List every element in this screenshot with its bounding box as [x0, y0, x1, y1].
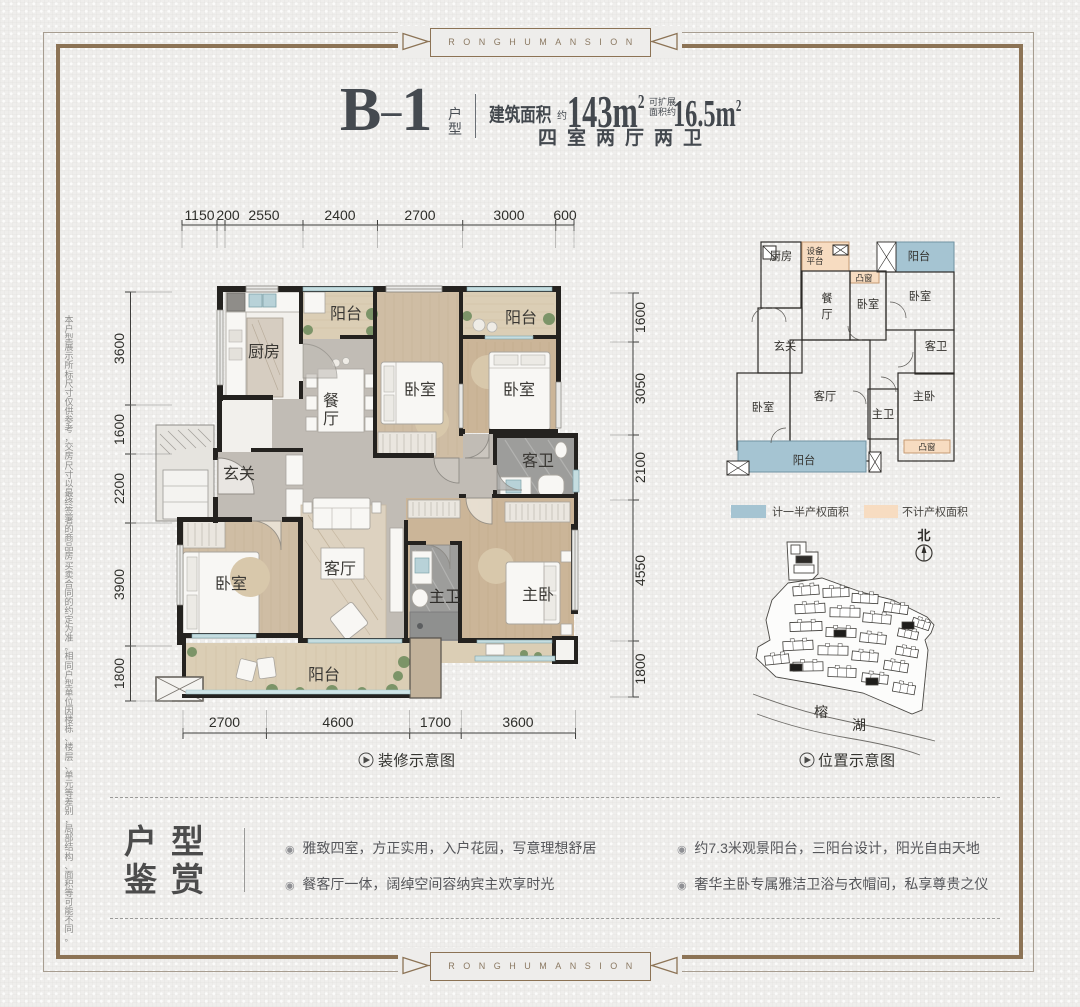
svg-text:1700: 1700: [420, 714, 451, 730]
svg-text:阳台: 阳台: [908, 249, 930, 263]
svg-text:2700: 2700: [209, 714, 240, 730]
svg-text:600: 600: [553, 207, 577, 223]
svg-text:2100: 2100: [632, 452, 648, 483]
svg-text:主卧: 主卧: [913, 390, 935, 403]
svg-text:主卧: 主卧: [522, 586, 554, 604]
svg-text:厅: 厅: [323, 411, 339, 428]
svg-text:厨房: 厨房: [770, 250, 792, 263]
svg-text:餐: 餐: [821, 291, 832, 305]
svg-text:1600: 1600: [111, 414, 127, 445]
svg-text:1800: 1800: [632, 653, 648, 684]
svg-text:玄关: 玄关: [774, 339, 796, 353]
svg-text:3600: 3600: [502, 714, 533, 730]
svg-text:客厅: 客厅: [814, 389, 836, 403]
svg-text:餐: 餐: [323, 392, 339, 410]
svg-text:榕: 榕: [814, 704, 828, 720]
svg-text:阳台: 阳台: [793, 453, 815, 467]
svg-text:3000: 3000: [493, 207, 524, 223]
svg-text:装修示意图: 装修示意图: [378, 752, 456, 770]
svg-text:凸窗: 凸窗: [918, 442, 935, 452]
svg-text:阳台: 阳台: [308, 666, 340, 684]
svg-text:计一半产权面积: 计一半产权面积: [772, 505, 849, 519]
svg-text:1800: 1800: [111, 658, 127, 689]
svg-text:客厅: 客厅: [324, 560, 356, 578]
svg-text:厅: 厅: [821, 309, 832, 321]
svg-text:3050: 3050: [632, 373, 648, 404]
svg-text:湖: 湖: [852, 717, 866, 733]
svg-text:阳台: 阳台: [330, 305, 362, 323]
svg-text:2200: 2200: [111, 473, 127, 504]
svg-text:3900: 3900: [111, 569, 127, 600]
svg-text:卧室: 卧室: [857, 297, 879, 311]
svg-text:不计产权面积: 不计产权面积: [902, 505, 968, 519]
svg-text:3600: 3600: [111, 333, 127, 364]
svg-text:主卫: 主卫: [872, 408, 894, 421]
svg-text:卧室: 卧室: [752, 400, 774, 414]
svg-text:平台: 平台: [806, 256, 823, 266]
svg-text:200: 200: [216, 207, 240, 223]
svg-text:4550: 4550: [632, 555, 648, 586]
svg-text:2400: 2400: [324, 207, 355, 223]
svg-text:卧室: 卧室: [503, 381, 535, 399]
svg-text:卧室: 卧室: [404, 381, 436, 399]
svg-text:设备: 设备: [806, 246, 824, 256]
svg-text:主卫: 主卫: [429, 588, 461, 606]
svg-text:位置示意图: 位置示意图: [818, 752, 896, 770]
svg-text:2550: 2550: [248, 207, 279, 223]
svg-text:2700: 2700: [404, 207, 435, 223]
svg-text:卧室: 卧室: [215, 575, 247, 593]
svg-text:凸窗: 凸窗: [855, 273, 872, 283]
svg-text:厨房: 厨房: [248, 343, 280, 361]
svg-text:1600: 1600: [632, 302, 648, 333]
svg-text:4600: 4600: [322, 714, 353, 730]
svg-text:卧室: 卧室: [909, 289, 931, 303]
svg-text:1150: 1150: [184, 207, 214, 223]
svg-text:客卫: 客卫: [925, 339, 947, 353]
svg-text:阳台: 阳台: [505, 309, 537, 327]
svg-text:北: 北: [917, 528, 930, 543]
svg-text:客卫: 客卫: [522, 452, 554, 470]
svg-text:玄关: 玄关: [223, 465, 255, 483]
